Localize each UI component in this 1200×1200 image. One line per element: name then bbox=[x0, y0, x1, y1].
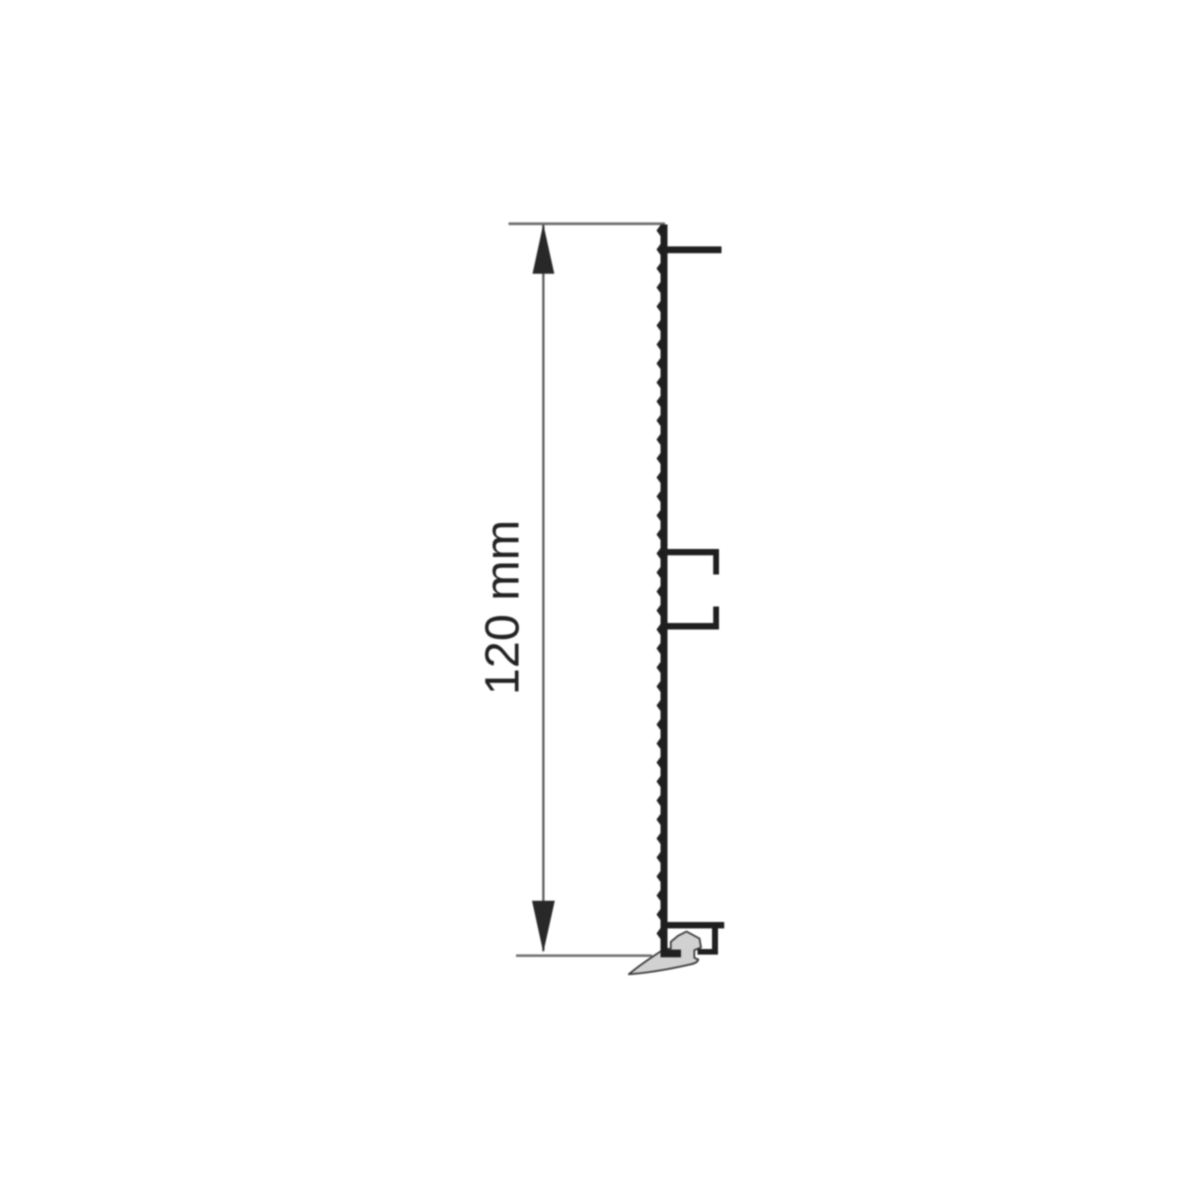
svg-text:120 mm: 120 mm bbox=[476, 520, 530, 695]
